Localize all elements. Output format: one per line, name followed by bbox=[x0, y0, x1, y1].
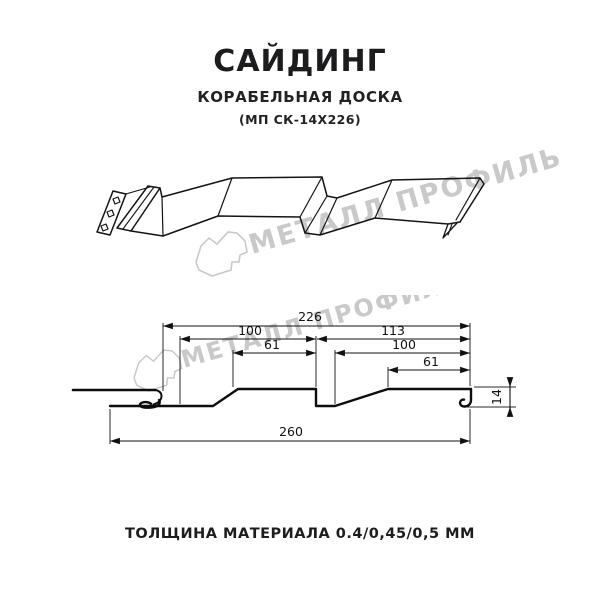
dimension-lines bbox=[110, 326, 510, 441]
profile-3d-drawing: МЕТАЛЛ ПРОФИЛЬ bbox=[0, 150, 600, 300]
watermark-1: МЕТАЛЛ ПРОФИЛЬ bbox=[196, 150, 566, 276]
product-code: (МП СК-14Х226) bbox=[0, 112, 600, 127]
dim-label-113: 113 bbox=[381, 323, 405, 338]
panel-profile-line bbox=[110, 389, 471, 407]
profile-section bbox=[73, 389, 471, 408]
product-sheet: САЙДИНГ КОРАБЕЛЬНАЯ ДОСКА (МП СК-14Х226)… bbox=[0, 0, 600, 600]
dim-label-260: 260 bbox=[279, 424, 303, 439]
dim-label-100-right: 100 bbox=[392, 337, 416, 352]
dim-label-61-left: 61 bbox=[264, 337, 280, 352]
page-title: САЙДИНГ bbox=[0, 44, 600, 79]
title-block: САЙДИНГ КОРАБЕЛЬНАЯ ДОСКА (МП СК-14Х226) bbox=[0, 44, 600, 127]
dim-label-100-left: 100 bbox=[238, 323, 262, 338]
watermark-text: МЕТАЛЛ ПРОФИЛЬ bbox=[245, 150, 566, 261]
extension-lines bbox=[110, 323, 516, 444]
cross-section-drawing: МЕТАЛЛ ПРОФИЛЬ bbox=[0, 295, 600, 470]
metall-profil-logo bbox=[196, 232, 247, 276]
thickness-note: ТОЛЩИНА МАТЕРИАЛА 0.4/0,45/0,5 ММ bbox=[0, 526, 600, 542]
metall-profil-logo bbox=[134, 350, 181, 391]
dim-label-14: 14 bbox=[489, 389, 504, 405]
dim-label-61-right: 61 bbox=[423, 354, 439, 369]
page-subtitle: КОРАБЕЛЬНАЯ ДОСКА bbox=[0, 88, 600, 106]
dim-label-226: 226 bbox=[298, 309, 322, 324]
